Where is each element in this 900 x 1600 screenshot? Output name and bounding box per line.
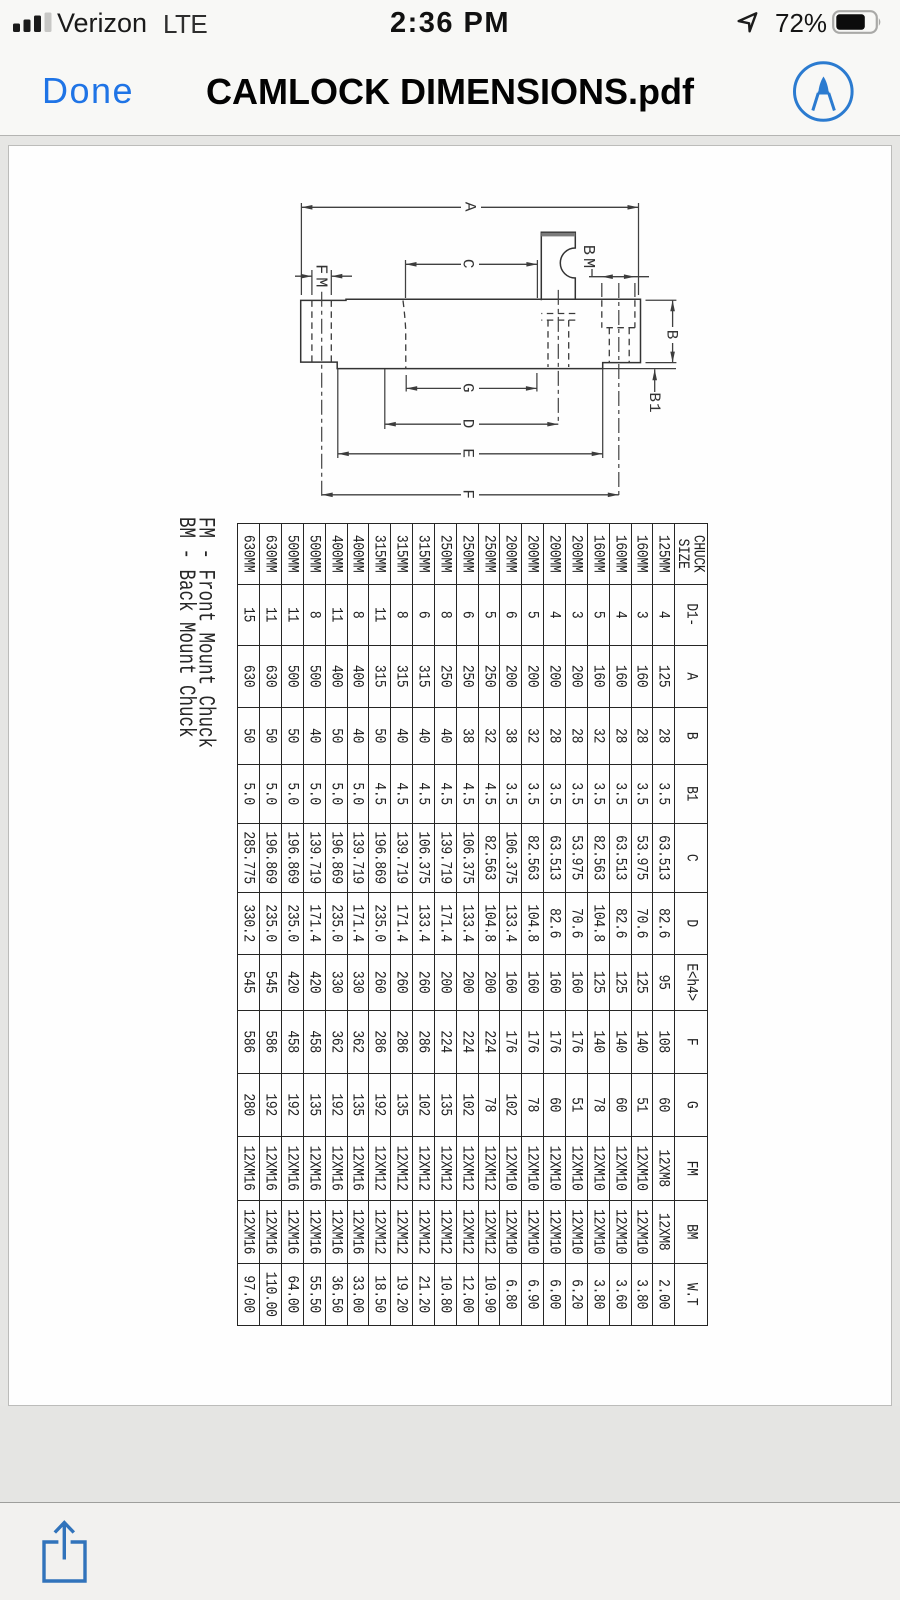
svg-text:BM: BM: [578, 245, 597, 271]
svg-text:E: E: [459, 448, 477, 459]
svg-text:G: G: [459, 383, 477, 394]
svg-text:C: C: [459, 259, 477, 270]
svg-text:B: B: [663, 330, 681, 341]
svg-text:B1: B1: [645, 392, 663, 413]
svg-text:F: F: [459, 489, 477, 500]
svg-text:A: A: [461, 202, 479, 213]
svg-text:D: D: [459, 419, 477, 430]
svg-text:FM: FM: [311, 264, 330, 290]
